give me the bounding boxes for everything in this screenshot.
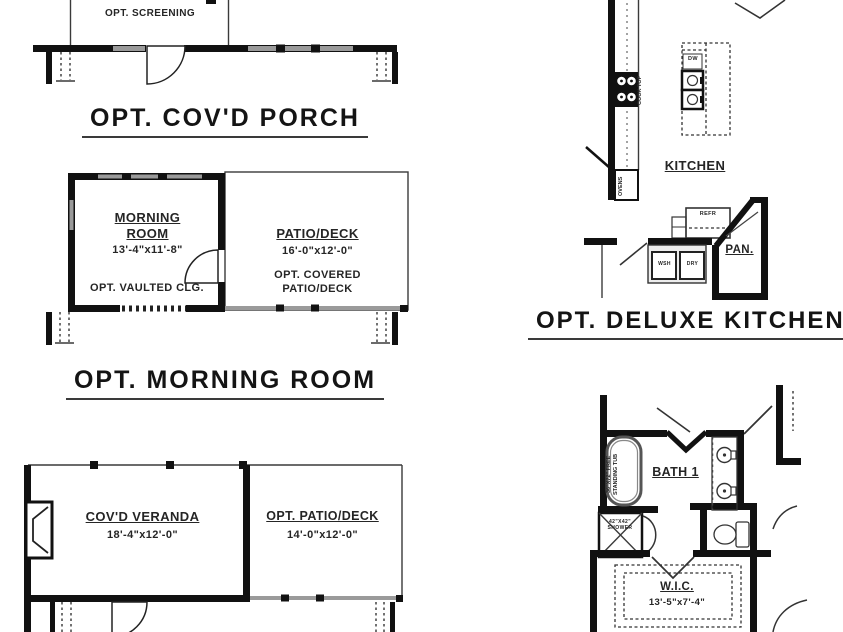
morning-room-dims: 13'-4"x11'-8" <box>75 244 220 258</box>
veranda-label: COV'D VERANDA <box>55 509 230 525</box>
cooktop-icon <box>615 72 638 107</box>
vaulted-clg-note: OPT. VAULTED CLG. <box>68 282 226 296</box>
porch-posts <box>46 52 398 84</box>
dryer-label: DRY <box>680 261 705 267</box>
porch-title: OPT. COV'D PORCH <box>50 104 400 138</box>
patio-deck-dims: 16'-0"x12'-0" <box>240 245 395 259</box>
bath-walls <box>598 385 807 632</box>
kitchen-label: KITCHEN <box>645 158 745 174</box>
bath-drawing <box>520 385 843 632</box>
veranda-door-swing-icon <box>112 602 147 632</box>
ovens-label: OVENS <box>618 174 630 198</box>
toilet-icon <box>714 522 749 547</box>
fireplace-icon <box>26 502 52 558</box>
washer-label: WSH <box>652 261 677 267</box>
veranda-dims: 18'-4"x12'-0" <box>55 529 230 543</box>
morning-room-posts <box>46 312 398 345</box>
shower-label: 42"X42" SHOWER <box>596 519 644 532</box>
patio-deck-note: OPT. COVERED PATIO/DECK <box>240 269 395 297</box>
wic-label: W.I.C. <box>628 580 726 594</box>
porch-door-swing-icon <box>146 45 185 85</box>
patio-deck-label: PATIO/DECK <box>240 226 395 242</box>
screening-label: OPT. SCREENING <box>75 8 225 21</box>
wic-dims: 13'-5"x7'-4" <box>628 597 726 609</box>
tub-label: 36"X72" FREE STANDING TUB <box>606 443 628 505</box>
refrigerator-label: REFR <box>686 211 730 218</box>
kitchen-drawing <box>520 0 843 302</box>
veranda-posts <box>50 602 395 632</box>
laundry-cabinets-icon <box>584 238 712 298</box>
veranda-walls <box>24 461 403 632</box>
morning-room-label: MORNING ROOM <box>75 210 220 243</box>
cooktop-label: COOK TOP <box>637 69 649 111</box>
floor-plan-sheet: OPT. SCREENING OPT. COV'D PORCH <box>0 0 843 632</box>
opt-patio-deck-label: OPT. PATIO/DECK <box>235 509 410 525</box>
pantry-label: PAN. <box>717 243 762 257</box>
morning-room-title: OPT. MORNING ROOM <box>30 366 420 400</box>
dishwasher-label: DW <box>682 56 704 63</box>
opt-patio-deck-dims: 14'-0"x12'-0" <box>235 529 410 543</box>
deluxe-kitchen-title: OPT. DELUXE KITCHEN <box>528 307 840 340</box>
bath-label: BATH 1 <box>628 465 723 481</box>
